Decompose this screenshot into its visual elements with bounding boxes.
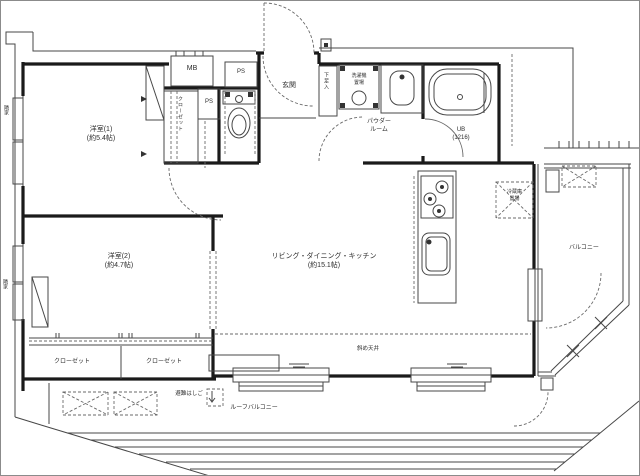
label-text: PS <box>229 69 253 77</box>
room-label-powder-room: パウダー ルーム <box>353 119 405 134</box>
room-label-balcony: バルコニー <box>553 245 615 253</box>
room-name: バルコニー <box>553 245 615 253</box>
low-counter <box>209 355 279 371</box>
room-name: 玄関 <box>273 82 305 91</box>
outlet-mark <box>141 151 147 157</box>
label-neighbor-upper: 隣家 <box>3 105 8 131</box>
room-name: UB <box>439 127 483 135</box>
label-text: クローゼット <box>36 359 108 367</box>
label-shoe-cabinet: 下足入 <box>323 72 328 116</box>
room-name-line1: パウダー <box>353 119 405 127</box>
floor-plan: 洋室(1) (約5.4帖) 洋室(2) (約4.7帖) リビング・ダイニング・キ… <box>0 0 640 476</box>
room-label-bedroom2: 洋室(2) (約4.7帖) <box>71 253 167 271</box>
label-neighbor-lower: 隣家 <box>2 279 7 305</box>
room-name: ルーフバルコニー <box>206 405 302 413</box>
room-name: 洋室(1) <box>56 126 146 135</box>
room-size: (約4.7帖) <box>71 262 167 271</box>
label-closet-hall: クローゼット <box>177 96 182 160</box>
window-ldk-right <box>411 368 491 391</box>
entrance-inner-swing <box>263 56 313 106</box>
label-closet-left: クローゼット <box>36 359 108 367</box>
balcony-rail <box>538 164 631 376</box>
label-washer-space: 洗濯機 置場 <box>341 73 377 86</box>
balcony-door-swing <box>546 273 601 328</box>
balcony-door-unit <box>528 269 542 321</box>
bathtub-icon <box>429 69 491 115</box>
label-text: クローゼット <box>177 96 183 132</box>
label-pipe-space-2: PS <box>199 99 219 107</box>
room-name: リビング・ダイニング・キッチン <box>239 253 409 262</box>
label-text: 隣家 <box>2 279 8 289</box>
hall-door-swing <box>169 168 221 220</box>
label-text: 避難はしご <box>169 391 209 398</box>
room-size: (約5.4帖) <box>56 135 146 144</box>
bedroom2-sliding-door <box>210 251 216 329</box>
label-sloped-ceiling: 斜め天井 <box>345 346 391 353</box>
label-meter-box: MB <box>177 65 207 74</box>
ac-outdoor-unit-space-balcony <box>562 166 596 187</box>
kitchen-sink-icon <box>422 233 450 275</box>
entrance-door-swing <box>264 3 314 53</box>
room-label-bedroom1: 洋室(1) (約5.4帖) <box>56 126 146 144</box>
washing-machine-icon <box>339 65 379 109</box>
label-text: 下足入 <box>323 72 329 90</box>
gas-stove-icon <box>421 176 453 218</box>
label-text: 斜め天井 <box>345 346 391 353</box>
room-name: 洋室(2) <box>71 253 167 262</box>
room-name-line2: ルーム <box>353 127 405 135</box>
fixtures <box>141 43 491 402</box>
label-closet-right: クローゼット <box>128 359 200 367</box>
room-size: (約15.1帖) <box>239 262 409 271</box>
ac-outdoor-unit-space-roof-2 <box>114 392 157 415</box>
ac-outdoor-unit-space-roof-1 <box>63 392 108 415</box>
label-text: 隣家 <box>3 105 9 115</box>
label-text-line2: 置場 <box>497 196 532 203</box>
label-escape-hatch: 避難はしご <box>169 391 209 398</box>
escape-ladder-hatch <box>209 391 215 402</box>
escape-hatch-box <box>207 389 223 406</box>
label-fridge-space: 冷蔵庫 置場 <box>497 189 532 202</box>
room-label-unit-bath: UB (1216) <box>439 127 483 142</box>
balcony-box <box>546 170 559 192</box>
roof-balcony-gate-swing <box>514 392 548 426</box>
terrace-edge-lines <box>41 401 639 475</box>
room-label-entrance: 玄関 <box>273 82 305 91</box>
floorplan-linework <box>1 1 639 475</box>
room-label-ldk: リビング・ダイニング・キッチン (約15.1帖) <box>239 253 409 271</box>
room-size: (1216) <box>439 135 483 143</box>
label-text: クローゼット <box>128 359 200 367</box>
label-text: MB <box>177 65 207 74</box>
label-text-line2: 置場 <box>341 80 377 87</box>
label-text: PS <box>199 99 219 107</box>
washbasin-icon <box>381 65 423 113</box>
room-label-roof-balcony: ルーフバルコニー <box>206 405 302 413</box>
toilet-icon <box>223 91 255 138</box>
label-pipe-space-1: PS <box>229 69 253 77</box>
walls <box>23 53 534 391</box>
